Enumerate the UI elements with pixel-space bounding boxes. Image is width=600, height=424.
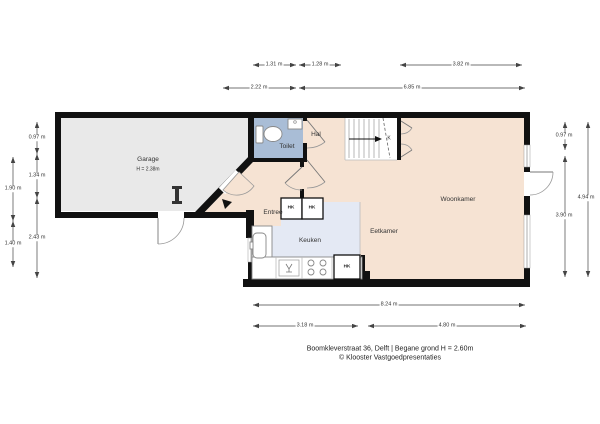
room-label-entree: Entree <box>263 210 282 217</box>
toilet-tank <box>256 126 263 143</box>
dim-top2-b: 6.85 m <box>403 85 422 91</box>
caption-address: Boomkleverstraat 36, Delft | Begane gron… <box>307 346 474 353</box>
floorplan-canvas <box>0 0 600 424</box>
room-label-garage: Garage <box>137 157 159 164</box>
room-label-kast: K <box>387 137 390 142</box>
dim-left-outer-a: 1.90 m <box>4 186 23 192</box>
dim-top2-a: 2.22 m <box>250 85 269 91</box>
room-label-toilet: Toilet <box>279 144 294 151</box>
room-label-woonkamer: Woonkamer <box>441 197 476 204</box>
room-label-hal: Hal <box>311 132 321 139</box>
closet-hk1-label: HK <box>288 206 295 211</box>
kitchen-sink <box>253 233 266 258</box>
back-door-arc <box>530 172 553 195</box>
dim-left-outer-b: 1.40 m <box>4 241 23 247</box>
dim-top1-c: 3.82 m <box>452 62 471 68</box>
floorplan-page: Garage H = 2.38m Toilet Hal Entree Keuke… <box>0 0 600 424</box>
dim-left-inner-c: 2.43 m <box>28 235 47 241</box>
dim-right-outer: 4.94 m <box>577 195 596 201</box>
kitchen-tap <box>250 242 253 249</box>
dim-bottom1: 8.24 m <box>380 302 399 308</box>
dim-right-inner-a: 0.97 m <box>555 133 574 139</box>
dim-bottom2-a: 3.18 m <box>296 323 315 329</box>
dim-left-inner-a: 0.97 m <box>28 135 47 141</box>
room-label-eetkamer: Eetkamer <box>370 229 398 236</box>
closet-hk3-label: HK <box>344 265 351 270</box>
dim-top1-b: 1.28 m <box>311 62 330 68</box>
caption-copyright: © Klooster Vastgoedpresentaties <box>339 355 441 362</box>
garage-height-label: H = 2.38m <box>136 168 159 173</box>
dim-right-inner-b: 3.90 m <box>555 213 574 219</box>
room-label-keuken: Keuken <box>299 238 321 245</box>
dim-bottom2-b: 4.80 m <box>438 323 457 329</box>
dim-left-inner-b: 1.34 m <box>28 173 47 179</box>
garage-door-arc <box>158 218 184 244</box>
toilet-bowl <box>264 127 282 142</box>
dim-top1-a: 1.31 m <box>265 62 284 68</box>
closet-hk2-label: HK <box>309 206 316 211</box>
